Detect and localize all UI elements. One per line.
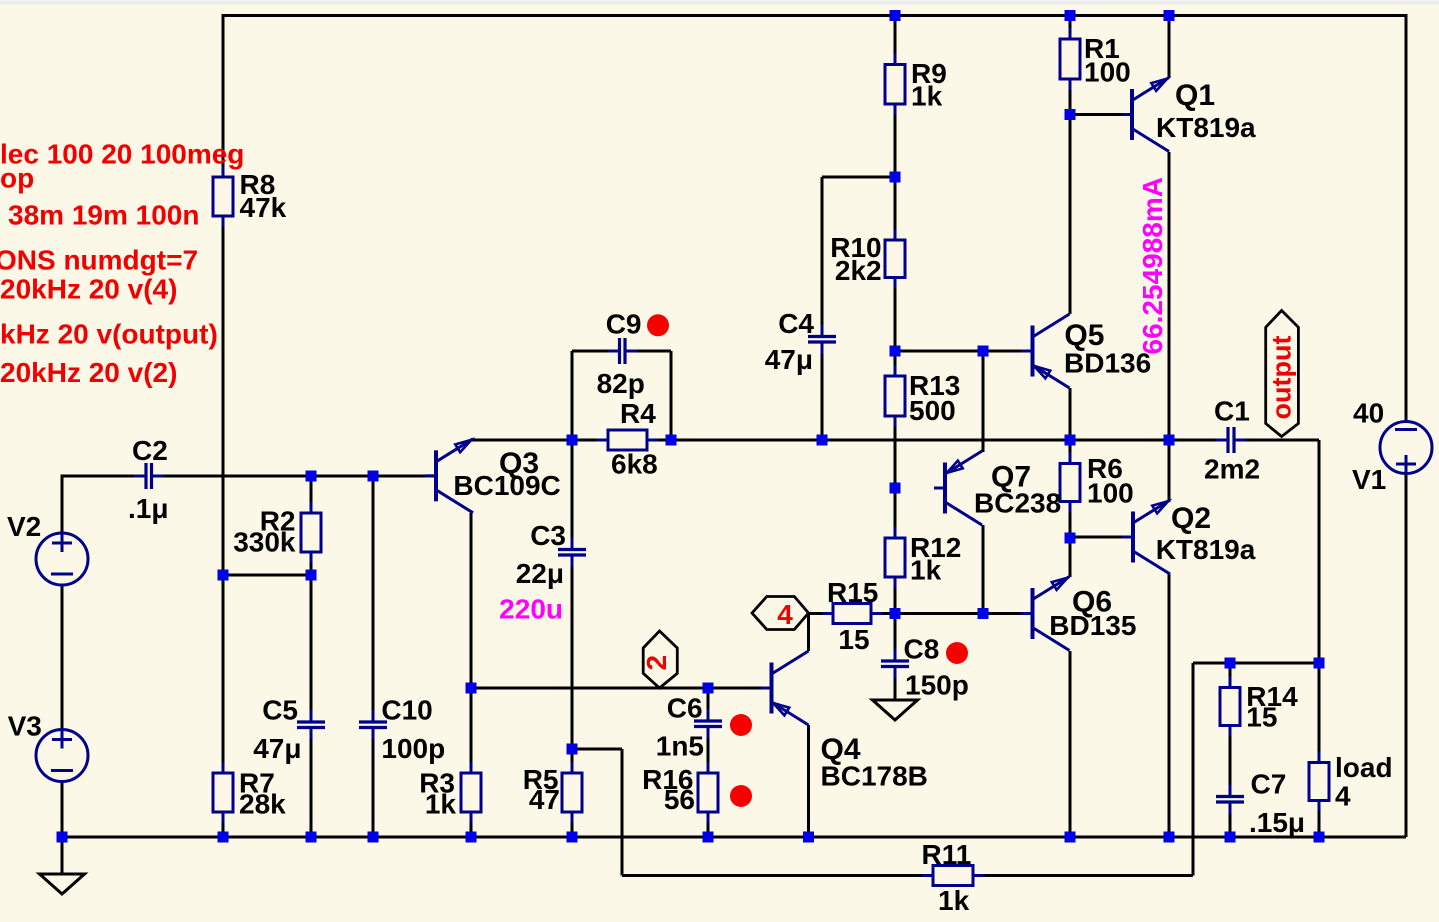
svg-text:15: 15 <box>1246 702 1277 733</box>
svg-text:4: 4 <box>1335 781 1351 812</box>
svg-text:BC238: BC238 <box>974 488 1061 519</box>
svg-text:kHz 20 v(output): kHz 20 v(output) <box>0 319 218 350</box>
svg-text:C3: C3 <box>530 520 566 551</box>
svg-text:47μ: 47μ <box>765 344 813 375</box>
svg-text:C7: C7 <box>1251 769 1287 800</box>
svg-text:1k: 1k <box>911 81 943 112</box>
svg-text:lec 100 20 100meg: lec 100 20 100meg <box>0 139 244 170</box>
svg-text:KT819a: KT819a <box>1156 112 1256 143</box>
svg-text:1k: 1k <box>938 885 970 916</box>
svg-text:40: 40 <box>1353 398 1384 429</box>
svg-text:C5: C5 <box>262 695 298 726</box>
svg-text:6k8: 6k8 <box>611 449 658 480</box>
svg-text:330k: 330k <box>233 527 296 558</box>
svg-text:C4: C4 <box>778 308 814 339</box>
svg-text:C10: C10 <box>381 695 432 726</box>
svg-text:100: 100 <box>1087 478 1134 509</box>
svg-text:C1: C1 <box>1214 396 1250 427</box>
svg-text:R4: R4 <box>620 398 656 429</box>
svg-text:Q2: Q2 <box>1171 502 1211 535</box>
svg-text:66.254988mA: 66.254988mA <box>1137 177 1168 354</box>
svg-text:ONS numdgt=7: ONS numdgt=7 <box>0 245 198 276</box>
svg-text:47: 47 <box>529 784 560 815</box>
svg-text:22μ: 22μ <box>516 558 564 589</box>
svg-text:output: output <box>1267 336 1297 420</box>
svg-text:.15μ: .15μ <box>1249 807 1305 838</box>
svg-text:1k: 1k <box>910 555 942 586</box>
svg-text:100: 100 <box>1084 57 1131 88</box>
svg-text:C8: C8 <box>904 634 940 665</box>
svg-text:C9: C9 <box>606 309 642 340</box>
svg-text:38m 19m 100n: 38m 19m 100n <box>8 200 199 231</box>
svg-text:BC109C: BC109C <box>453 470 560 501</box>
svg-text:28k: 28k <box>239 789 286 820</box>
svg-text:2: 2 <box>641 655 672 671</box>
svg-text:C6: C6 <box>667 693 703 724</box>
svg-text:KT819a: KT819a <box>1156 534 1256 565</box>
svg-text:20kHz 20 v(4): 20kHz 20 v(4) <box>0 274 177 305</box>
svg-text:2m2: 2m2 <box>1204 454 1260 485</box>
svg-text:100p: 100p <box>381 733 445 764</box>
svg-text:BD135: BD135 <box>1049 610 1136 641</box>
svg-text:15: 15 <box>838 624 869 655</box>
svg-text:1n5: 1n5 <box>656 731 704 762</box>
svg-text:BC178B: BC178B <box>821 761 928 792</box>
svg-text:500: 500 <box>909 395 956 426</box>
svg-text:op: op <box>0 163 34 194</box>
svg-text:V2: V2 <box>7 511 41 542</box>
svg-text:47μ: 47μ <box>253 733 301 764</box>
svg-text:1k: 1k <box>425 789 457 820</box>
svg-text:C2: C2 <box>132 435 168 466</box>
svg-text:R15: R15 <box>827 577 878 608</box>
svg-text:load: load <box>1335 752 1393 783</box>
svg-text:.1μ: .1μ <box>128 493 168 524</box>
svg-text:Q1: Q1 <box>1175 79 1215 112</box>
svg-text:R11: R11 <box>922 839 972 870</box>
svg-text:220u: 220u <box>499 594 563 625</box>
svg-text:47k: 47k <box>240 192 287 223</box>
svg-text:82p: 82p <box>597 368 645 399</box>
svg-text:V3: V3 <box>8 711 42 742</box>
svg-text:4: 4 <box>777 599 793 630</box>
svg-text:56: 56 <box>664 784 695 815</box>
svg-text:150p: 150p <box>905 670 969 701</box>
svg-text:20kHz 20 v(2): 20kHz 20 v(2) <box>0 357 177 388</box>
svg-text:2k2: 2k2 <box>835 255 882 286</box>
svg-text:V1: V1 <box>1352 464 1386 495</box>
